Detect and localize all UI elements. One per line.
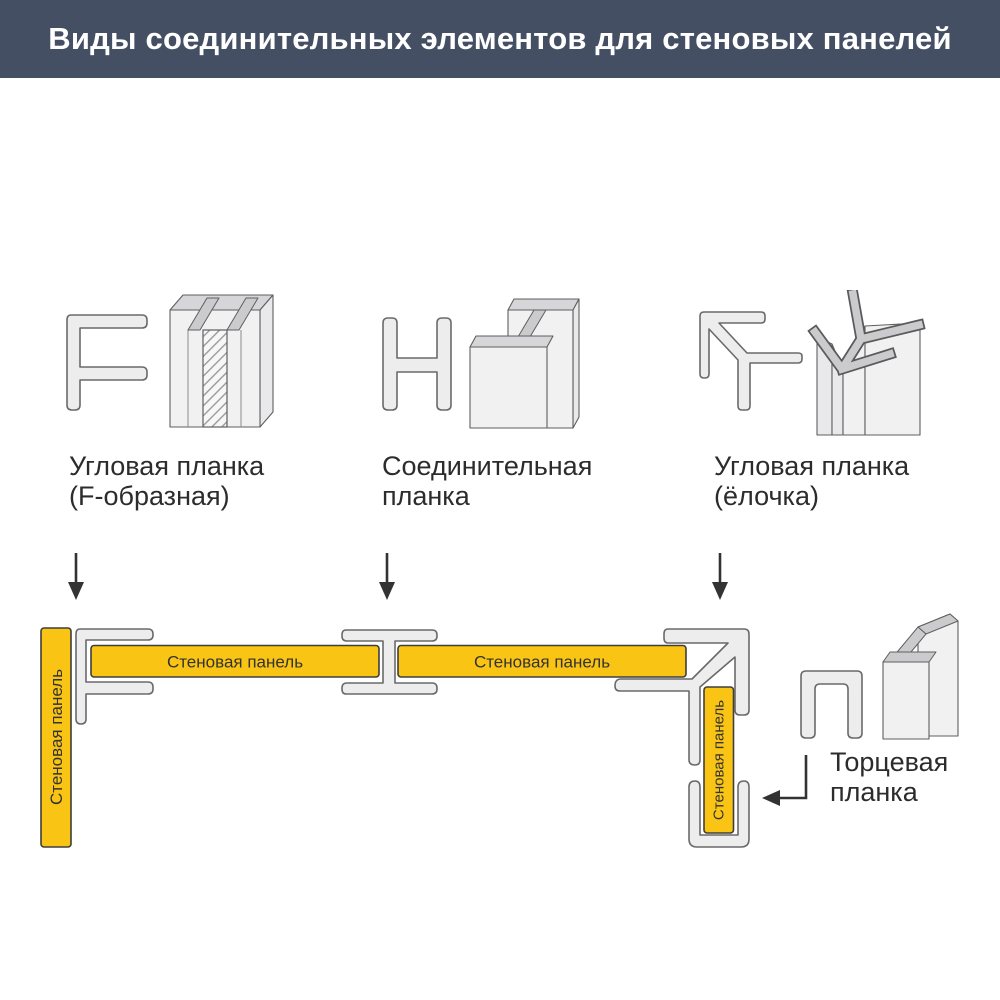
end-cap-3d-view (883, 614, 958, 739)
back-panel-side (573, 299, 579, 428)
caption-line: Угловая планка (714, 451, 909, 481)
groove-hatched (203, 330, 227, 427)
header-bar: Виды соединительных элементов для стенов… (0, 0, 1000, 78)
down-arrow-f (68, 553, 84, 600)
front-panel-top (470, 336, 553, 347)
corner-strip-3d-view (815, 294, 920, 435)
wall-panel-label: Стеновая панель (474, 653, 610, 672)
panel-side-face (260, 295, 273, 427)
cap-front-band (883, 652, 936, 662)
corner-strip-caption: Угловая планка (ёлочка) (714, 451, 909, 511)
panel-top-face (170, 295, 273, 310)
f-strip-3d-view (170, 295, 273, 427)
caption-line: планка (382, 481, 592, 511)
f-strip-illustration (60, 290, 290, 455)
end-cap-cross-section (801, 671, 862, 738)
corner-strip-illustration (695, 290, 955, 465)
caption-line: (F-образная) (69, 481, 264, 511)
caption-line: Угловая планка (69, 451, 264, 481)
h-strip-caption: Соединительная планка (382, 451, 592, 511)
end-cap-caption: Торцевая планка (830, 747, 948, 807)
h-strip-3d-view (470, 299, 579, 428)
caption-line: (ёлочка) (714, 481, 909, 511)
cap-front-face (883, 662, 929, 739)
back-panel-top (508, 299, 579, 310)
end-cap-leader-arrow (762, 755, 806, 806)
page-title: Виды соединительных элементов для стенов… (48, 21, 951, 57)
wall-panel-label: Стеновая панель (167, 653, 303, 672)
h-profile-cross-section (383, 318, 451, 410)
infographic-page: Виды соединительных элементов для стенов… (0, 0, 1000, 1000)
down-arrow-corner (712, 553, 728, 600)
wall-panel-label: Стеновая панель (47, 669, 66, 805)
h-strip-illustration (375, 290, 610, 455)
wall-panel-label: Стеновая панель (711, 700, 728, 820)
corner-profile-cross-section (700, 312, 802, 410)
down-arrow-h (379, 553, 395, 600)
caption-line: Соединительная (382, 451, 592, 481)
f-strip-caption: Угловая планка (F-образная) (69, 451, 264, 511)
f-profile-cross-section (67, 315, 147, 410)
front-panel-front (470, 347, 547, 428)
caption-line: планка (830, 777, 948, 807)
caption-line: Торцевая (830, 747, 948, 777)
